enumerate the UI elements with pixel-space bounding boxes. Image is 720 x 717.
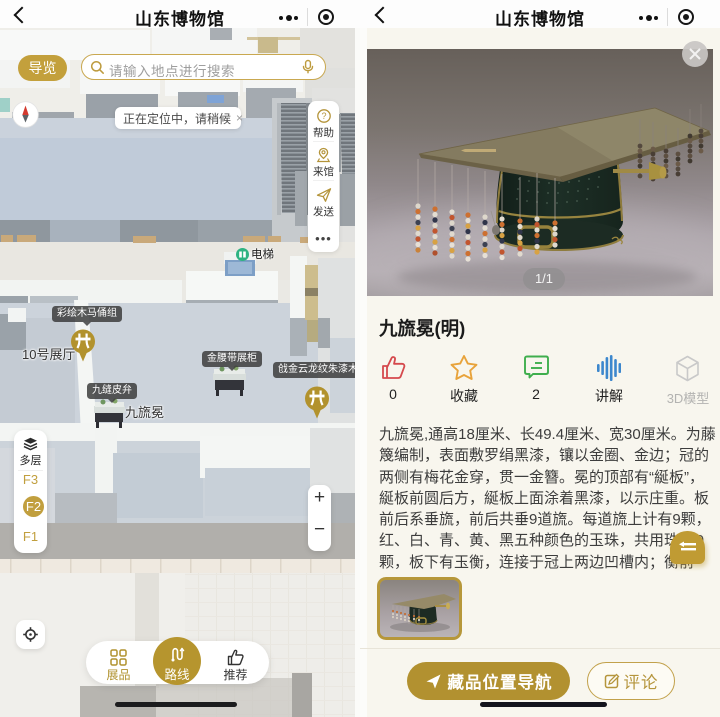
svg-text:?: ? — [321, 111, 326, 121]
svg-text:1/1: 1/1 — [535, 271, 553, 286]
